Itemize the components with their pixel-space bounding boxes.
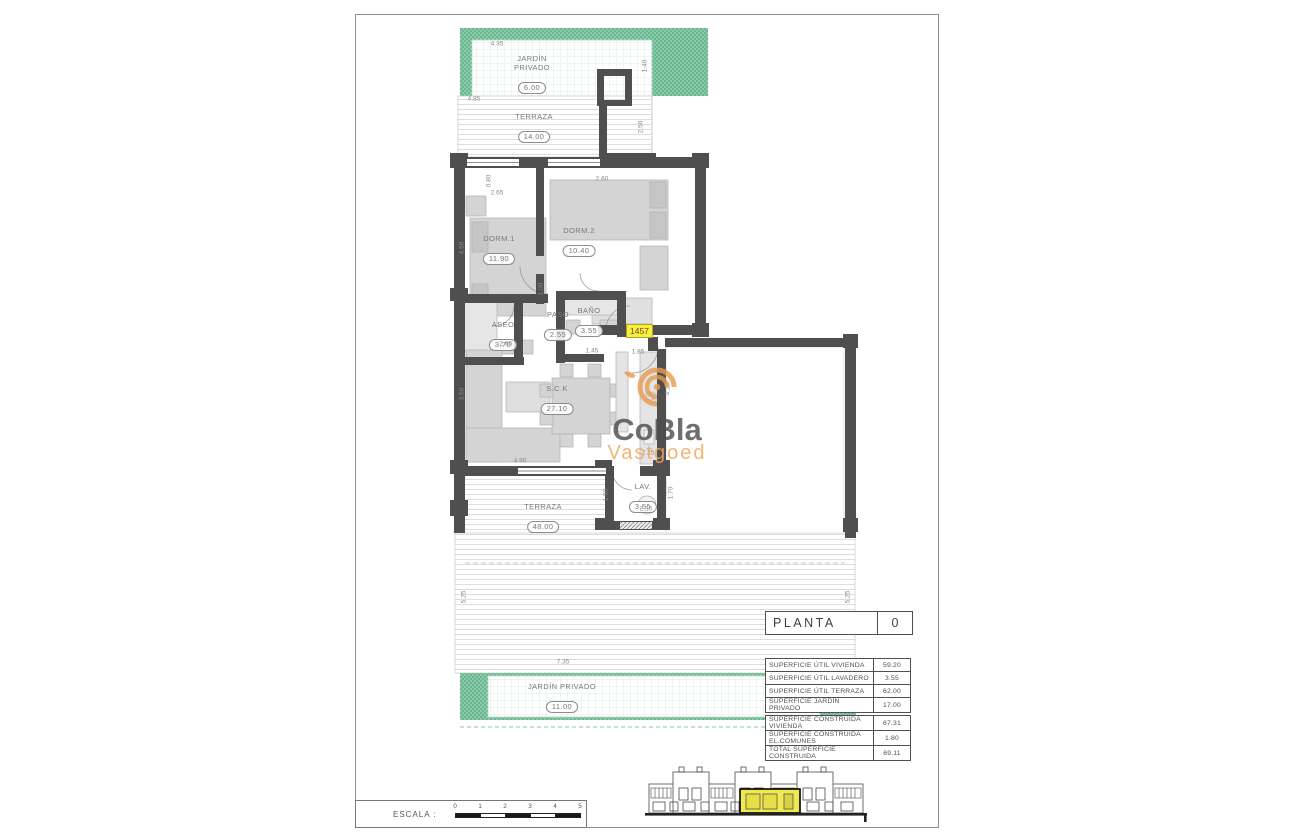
table-row: SUPERFICIE ÚTIL VIVIENDA59.20 <box>766 659 911 672</box>
dimension-label: 2.60 <box>596 176 609 183</box>
plan-labels: JARDÍNPRIVADO6.00TERRAZA14.00DORM.111.90… <box>0 0 1290 840</box>
room-area-badge: 3.55 <box>575 325 603 337</box>
scale-label: ESCALA : <box>393 810 437 819</box>
title-block-value: 0 <box>877 612 912 634</box>
row-label: SUPERFICIE ÚTIL TERRAZA <box>766 685 874 698</box>
dimension-label: 4.10 <box>665 383 672 396</box>
row-label: SUPERFICIE ÚTIL VIVIENDA <box>766 659 874 672</box>
row-label: TOTAL SUPERFICIE CONSTRUIDA <box>766 746 874 761</box>
room-label-salon-cocina: S.C.K27.10 <box>541 384 574 415</box>
row-value: 3.55 <box>874 672 911 685</box>
floor-plan-sheet: JARDÍNPRIVADO6.00TERRAZA14.00DORM.111.90… <box>0 0 1290 840</box>
dimension-label: 1.45 <box>586 348 599 355</box>
built-areas-table: SUPERFICIE CONSTRUIDA VIVIENDA67.31SUPER… <box>765 715 911 761</box>
room-area-badge: 11.90 <box>483 253 515 265</box>
table-row: SUPERFICIE JARDÍN PRIVADO17.00 <box>766 698 911 713</box>
table-row: SUPERFICIE CONSTRUIDA EL.COMUNES1.80 <box>766 731 911 746</box>
dimension-label: 5.25 <box>461 591 468 604</box>
dimension-label: 7.35 <box>557 659 570 666</box>
row-label: SUPERFICIE CONSTRUIDA EL.COMUNES <box>766 731 874 746</box>
dimension-label: 4.85 <box>468 96 481 103</box>
scale-tick: 2 <box>503 803 507 810</box>
room-label-dormitorio-1: DORM.111.90 <box>483 234 515 265</box>
dimension-label: 1.00 <box>538 283 545 296</box>
room-area-badge: 48.00 <box>527 521 560 533</box>
useful-areas-table: SUPERFICIE ÚTIL VIVIENDA59.20SUPERFICIE … <box>765 658 911 713</box>
row-value: 62.00 <box>874 685 911 698</box>
scale-tick: 1 <box>478 803 482 810</box>
dimension-label: 4.35 <box>491 41 504 48</box>
row-value: 67.31 <box>874 716 911 731</box>
unit-number-tag: 1457 <box>626 324 653 338</box>
room-label-paso: PASO2.55 <box>544 310 572 341</box>
dimension-label: 4.50 <box>459 242 466 255</box>
dimension-label: 0.80 <box>486 175 493 188</box>
dimension-label: 1.70 <box>668 487 675 500</box>
row-label: SUPERFICIE JARDÍN PRIVADO <box>766 698 874 713</box>
dimension-label: 2.65 <box>500 341 513 348</box>
room-area-badge: 11.00 <box>546 701 578 713</box>
title-block-label: PLANTA <box>766 612 877 634</box>
room-label-jardin-privado-sur: JARDÍN PRIVADO11.00 <box>528 682 596 713</box>
scale-bar-box: ESCALA : 012345 <box>355 800 587 828</box>
scale-tick: 5 <box>578 803 582 810</box>
room-label-terraza-sur: TERRAZA48.00 <box>524 502 562 533</box>
room-area-badge: 6.00 <box>518 82 546 94</box>
room-area-badge: 27.10 <box>541 403 574 415</box>
dimension-label: 5.25 <box>845 591 852 604</box>
dimension-label: 1.90 <box>603 489 610 502</box>
table-row: SUPERFICIE ÚTIL TERRAZA62.00 <box>766 685 911 698</box>
scale-tick: 3 <box>528 803 532 810</box>
dimension-label: 3.50 <box>459 388 466 401</box>
dimension-label: 1.40 <box>642 60 649 73</box>
dimension-label: 2.65 <box>491 190 504 197</box>
dimension-label: 2.50 <box>638 121 645 134</box>
room-label-dormitorio-2: DORM.210.40 <box>563 226 596 257</box>
scale-tick: 0 <box>453 803 457 810</box>
table-row: SUPERFICIE CONSTRUIDA VIVIENDA67.31 <box>766 716 911 731</box>
room-area-badge: 2.55 <box>544 329 572 341</box>
dimension-label: 4.90 <box>514 458 527 465</box>
scale-segment <box>505 813 531 818</box>
scale-segment <box>455 813 481 818</box>
room-area-badge: 10.40 <box>563 245 596 257</box>
table-row: SUPERFICIE ÚTIL LAVADERO3.55 <box>766 672 911 685</box>
dimension-label: 2.10 <box>640 506 653 513</box>
room-area-badge: 14.00 <box>518 131 551 143</box>
row-value: 59.20 <box>874 659 911 672</box>
scale-segment <box>530 813 556 818</box>
scale-segment <box>480 813 506 818</box>
row-value: 69.11 <box>874 746 911 761</box>
scale-segment <box>555 813 581 818</box>
row-value: 17.00 <box>874 698 911 713</box>
scale-bar: 012345 <box>455 803 582 823</box>
scale-tick: 4 <box>553 803 557 810</box>
room-label-terraza-norte: TERRAZA14.00 <box>515 112 553 143</box>
row-label: SUPERFICIE ÚTIL LAVADERO <box>766 672 874 685</box>
row-label: SUPERFICIE CONSTRUIDA VIVIENDA <box>766 716 874 731</box>
room-label-jardin-privado-norte: JARDÍNPRIVADO6.00 <box>514 54 550 94</box>
title-block: PLANTA 0 <box>765 611 913 635</box>
dimension-label: 2.25 <box>642 450 655 457</box>
room-label-bano: BAÑO3.55 <box>575 306 603 337</box>
table-row: TOTAL SUPERFICIE CONSTRUIDA69.11 <box>766 746 911 761</box>
dimension-label: 1.85 <box>632 349 645 356</box>
row-value: 1.80 <box>874 731 911 746</box>
